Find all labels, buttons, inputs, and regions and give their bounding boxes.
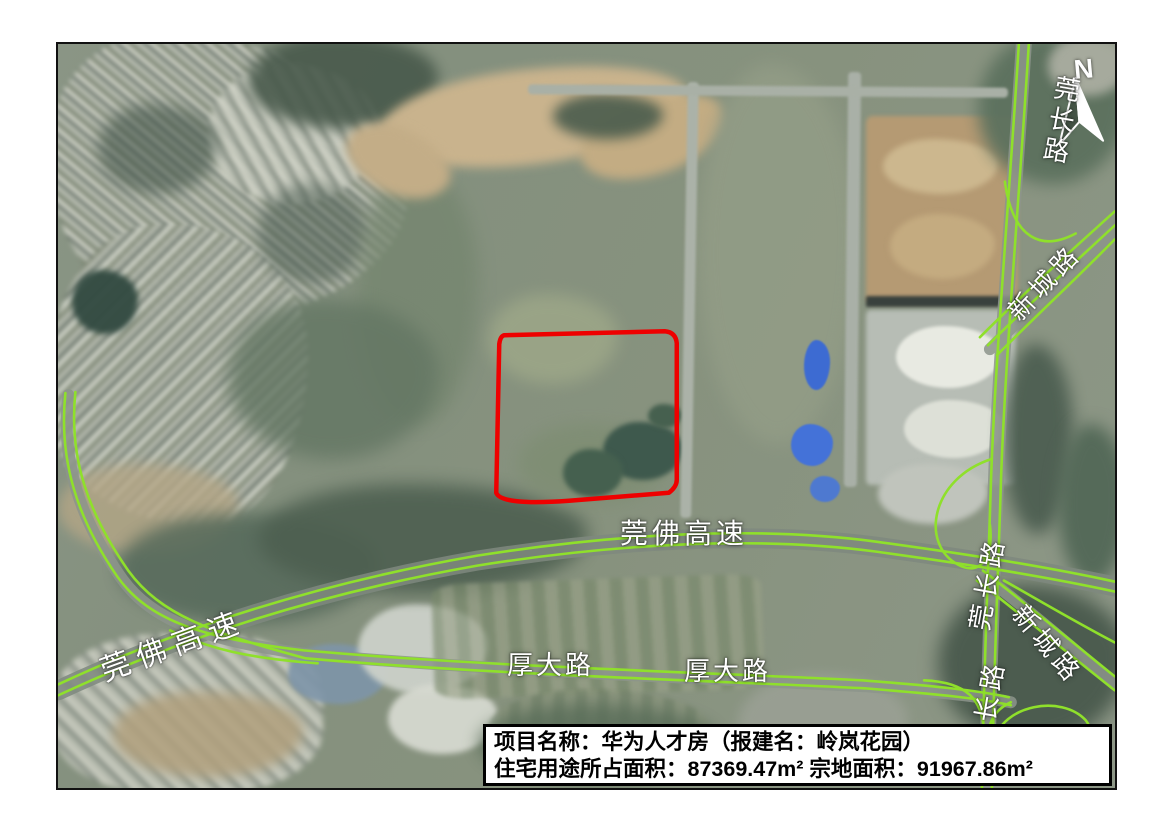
road-label-houda-road: 厚大路 bbox=[507, 645, 594, 682]
parcel-outline bbox=[496, 331, 677, 502]
page: N 莞佛高速 莞佛高速 厚大路 厚大路 莞长路 莞长路 莞长路 新城路 新城路 … bbox=[0, 0, 1169, 827]
road-label-houda-road: 厚大路 bbox=[684, 651, 771, 688]
satellite-map[interactable]: N 莞佛高速 莞佛高速 厚大路 厚大路 莞长路 莞长路 莞长路 新城路 新城路 … bbox=[56, 42, 1117, 790]
road-label-guanfo-expressway: 莞佛高速 bbox=[620, 512, 748, 552]
project-area-line: 住宅用途所占面积：87369.47m² 宗地面积：91967.86m² bbox=[494, 756, 1101, 783]
project-info-box: 项目名称：华为人才房（报建名：岭岚花园） 住宅用途所占面积：87369.47m²… bbox=[483, 724, 1112, 786]
project-name-line: 项目名称：华为人才房（报建名：岭岚花园） bbox=[494, 729, 1101, 756]
